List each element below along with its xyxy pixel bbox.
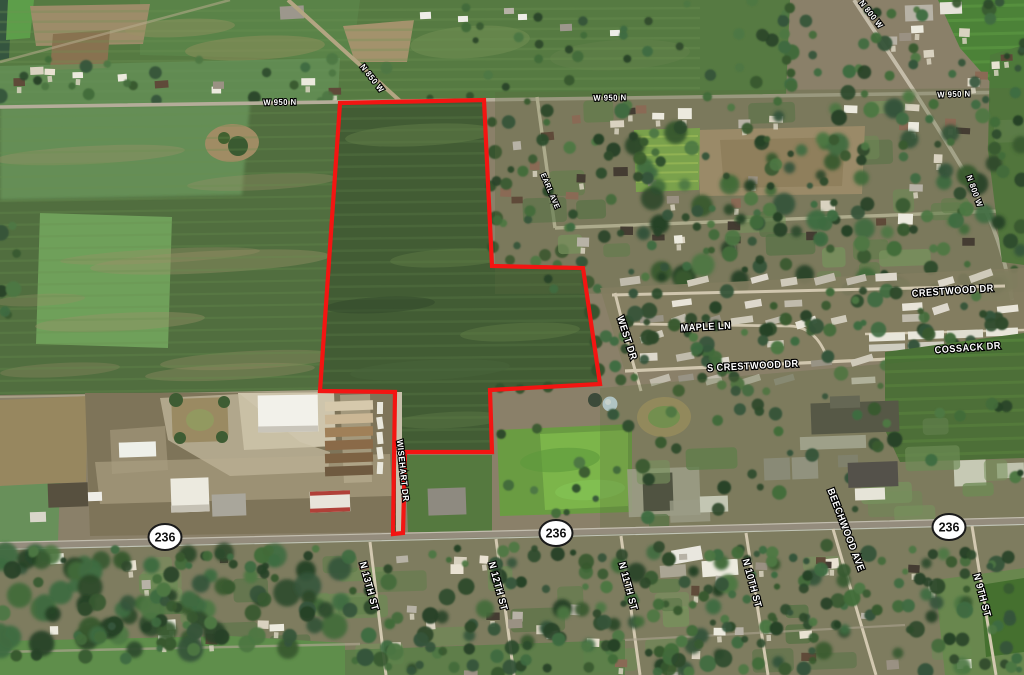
svg-text:236: 236 xyxy=(546,527,567,541)
svg-text:W 950 N: W 950 N xyxy=(263,97,296,107)
svg-text:236: 236 xyxy=(155,531,176,545)
svg-text:236: 236 xyxy=(939,521,960,535)
svg-text:W 950 N: W 950 N xyxy=(593,93,626,103)
svg-text:W 950 N: W 950 N xyxy=(937,89,971,100)
